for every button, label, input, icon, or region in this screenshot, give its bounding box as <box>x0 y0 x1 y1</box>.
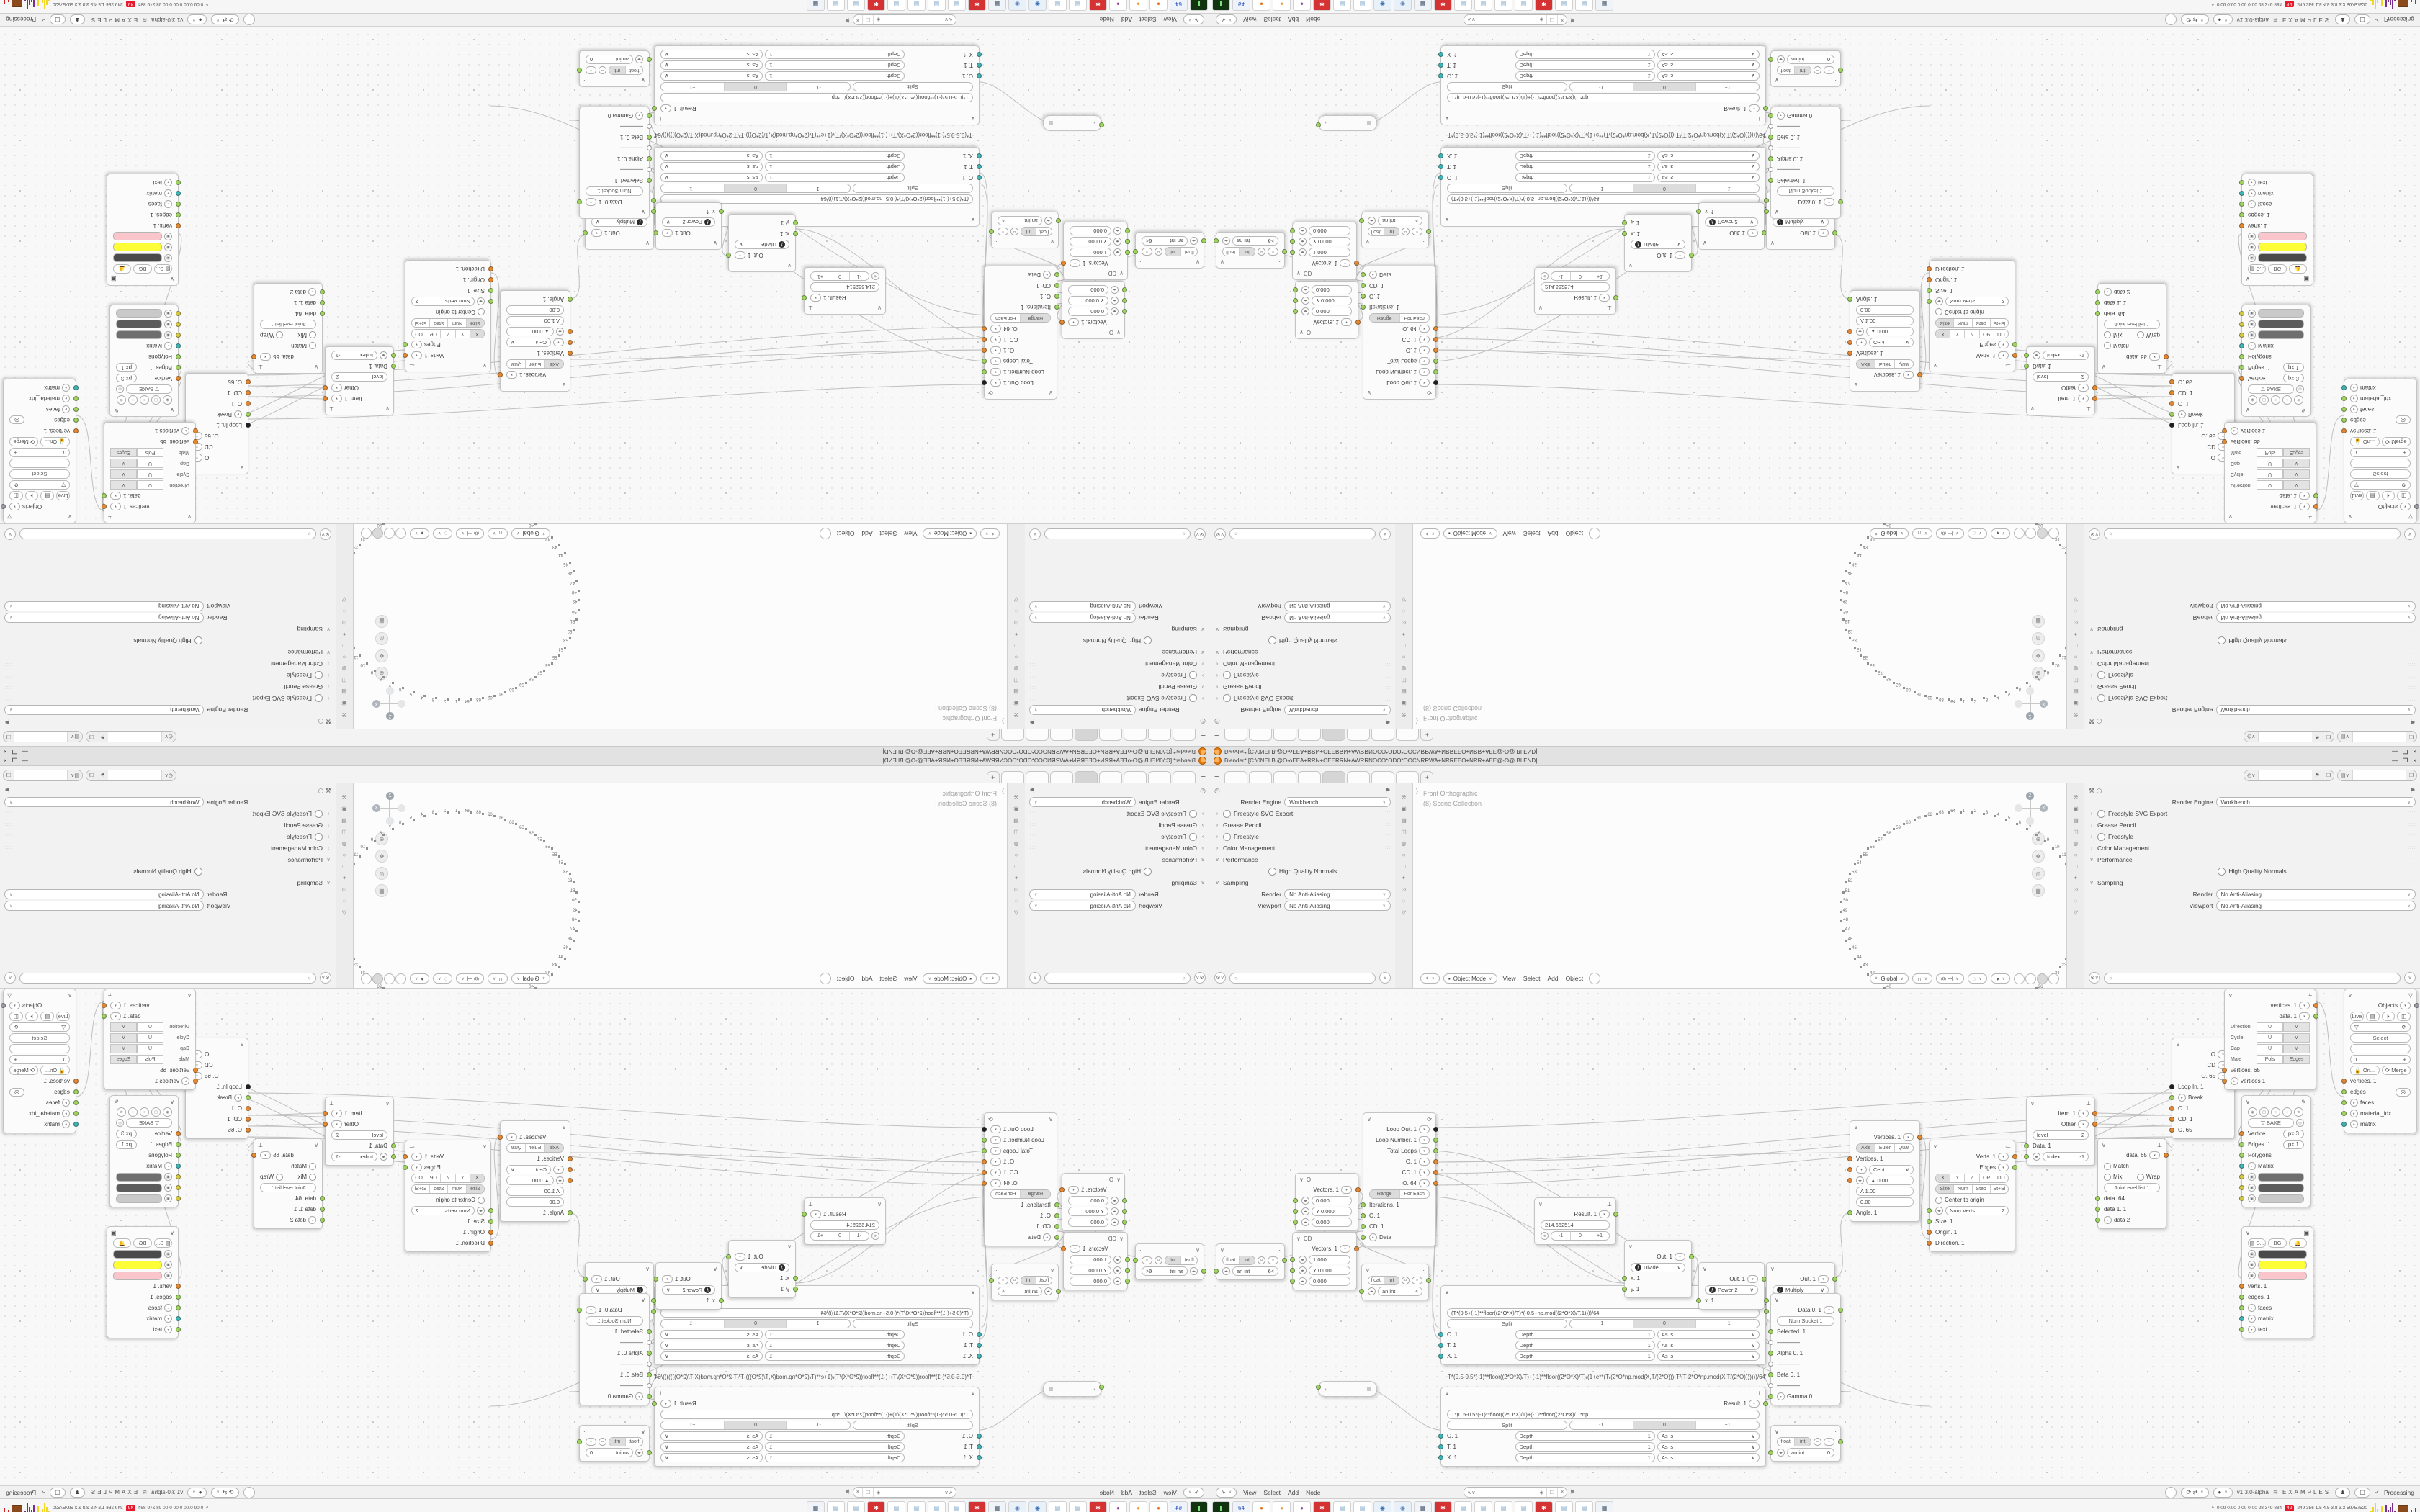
value-field[interactable]: Y 0.000 <box>1068 296 1108 305</box>
socket-in-green[interactable] <box>2095 1207 2100 1212</box>
node-loop-in[interactable]: ∨⟳Loop Out. 1▾Loop Number. 1▾Total Loops… <box>984 266 1057 400</box>
physics-icon[interactable]: ⊙ <box>1014 887 1019 893</box>
socket-in-orange[interactable] <box>246 1128 251 1133</box>
toggle-icon[interactable]: ⟲ <box>2294 395 2303 405</box>
floppy64-icon[interactable]: 64 <box>1232 0 1250 12</box>
tab-Axis[interactable]: Axis <box>544 1144 563 1152</box>
tab-Quat[interactable]: Quat <box>507 360 525 368</box>
physics-icon[interactable]: ⊙ <box>1402 619 1407 625</box>
socket-menu[interactable]: ▾ <box>1419 1179 1430 1187</box>
copy-icon[interactable]: ❐ <box>86 770 97 780</box>
socket-in-green[interactable] <box>1293 1198 1298 1203</box>
socket-in-yellow[interactable] <box>2239 1196 2244 1201</box>
socket-out-orange[interactable] <box>1433 1170 1438 1175</box>
socket-out-green[interactable] <box>989 1278 994 1283</box>
socket-menu[interactable]: ▾ <box>1998 1153 2009 1161</box>
node-button[interactable]: Num Socket 1 <box>1777 1316 1834 1326</box>
socket-in-green[interactable] <box>1622 232 1627 237</box>
tab-OP[interactable]: OP <box>426 330 440 338</box>
socket-in-green[interactable] <box>1290 1268 1295 1273</box>
value-field[interactable]: A 1.00 <box>1856 316 1914 325</box>
shield-icon[interactable]: ◈ <box>1536 15 1546 24</box>
node-menu-add[interactable]: Add <box>1286 1489 1301 1496</box>
pin-icon[interactable]: ⚑ <box>845 1488 851 1496</box>
editor-type-button[interactable]: ∿∨ <box>1183 1488 1204 1498</box>
value-field[interactable]: A 1.00 <box>506 316 564 325</box>
panel-checkbox[interactable] <box>1223 695 1231 703</box>
socket-out-orange[interactable] <box>2092 1122 2097 1127</box>
socket-menu[interactable]: ▾ <box>1998 341 2009 348</box>
object-icon[interactable]: □ <box>2074 642 2078 648</box>
modifiers-icon[interactable]: ✦ <box>1402 631 1407 636</box>
panel-checkbox[interactable] <box>2097 695 2105 703</box>
socket-in-green[interactable] <box>1125 1279 1130 1284</box>
node-viewer-index[interactable]: ∨▣▤ S...BG🔔▣▣▣verts. 1edges. 1▸faces▸mat… <box>2241 1226 2313 1338</box>
physics-icon[interactable]: ⊙ <box>342 619 347 625</box>
node-button-BG[interactable]: BG <box>133 264 151 274</box>
notepad-icon[interactable]: ▤ <box>1575 0 1593 12</box>
grid-row-Direction[interactable]: DirectionUV <box>110 481 189 490</box>
viewport-dropdown[interactable]: No Anti-Aliasing∨ <box>1029 601 1136 611</box>
socket-menu[interactable]: ▾ <box>110 1012 121 1020</box>
socket-out-green[interactable] <box>2012 1165 2017 1170</box>
value-field[interactable]: level2 <box>331 1130 387 1140</box>
panel-label[interactable]: Sampling <box>297 879 323 886</box>
node-viewer-index[interactable]: ∨▣▤ S...BG🔔▣▣▣verts. 1edges. 1▸faces▸mat… <box>107 1226 179 1338</box>
render-dropdown[interactable]: No Anti-Aliasing∨ <box>1029 613 1136 623</box>
gear-disc-icon[interactable]: ◉ <box>1008 1501 1026 1512</box>
panel-label[interactable]: Freestyle <box>1234 672 1259 679</box>
panel-label[interactable]: Performance <box>2097 856 2133 863</box>
panel-label[interactable]: Performance <box>1223 649 1258 656</box>
search-circle-button[interactable] <box>1589 528 1600 539</box>
viewport-menu-view[interactable]: View <box>1501 975 1518 982</box>
panel-label[interactable]: Color Management <box>1223 660 1275 667</box>
notepad-icon[interactable]: ▤ <box>907 0 926 12</box>
workspace-tab[interactable] <box>1273 729 1296 741</box>
node-button[interactable]: Select <box>2350 469 2411 479</box>
processing-checkbox[interactable]: ✓ <box>40 16 45 24</box>
red-gear-icon[interactable]: ✱ <box>1434 1501 1452 1512</box>
copy-icon[interactable]: ❐ <box>863 15 874 24</box>
socket-in-green[interactable] <box>2095 1196 2100 1201</box>
view-layer-icon[interactable]: ◫ <box>341 677 347 683</box>
grid-row-Cycle[interactable]: CycleUV <box>110 1034 189 1043</box>
socket-out-gray[interactable] <box>1 505 6 510</box>
node-uv-connection[interactable]: ∨⌗vertices. 1▾data. 1▾DirectionUVCycleUV… <box>2224 422 2316 523</box>
socket-in-cyan[interactable] <box>977 1343 982 1348</box>
value-field[interactable]: an int4 <box>1378 216 1422 225</box>
pin-icon[interactable]: ⚑ <box>97 732 107 742</box>
tab-Axis[interactable]: Axis <box>1857 360 1875 368</box>
node-uv-connection[interactable]: ∨⌗vertices. 1▾data. 1▾DirectionUVCycleUV… <box>104 989 196 1090</box>
new-workspace-button[interactable]: + <box>987 771 1000 783</box>
panel-label[interactable]: Performance <box>287 649 323 656</box>
node-button[interactable] <box>9 459 70 468</box>
snapping-button[interactable]: ∩∨ <box>1912 973 1932 984</box>
panel-label[interactable]: Freestyle SVG Export <box>253 810 312 817</box>
tab-Num[interactable]: Num <box>1954 319 1972 327</box>
tab-X[interactable]: X <box>1936 330 1950 338</box>
node-button-🔒 Ori...[interactable]: 🔒 Ori... <box>2350 437 2380 446</box>
node-button[interactable]: JoinLevel list 1 <box>260 320 316 329</box>
node-number-64[interactable]: ∨·floatint⚯▾◂▸an int64 <box>1135 232 1204 269</box>
socket-out-green[interactable] <box>726 253 731 258</box>
value-field[interactable]: 0.00 <box>1856 305 1914 315</box>
tool-icon[interactable]: ⚒ <box>2073 711 2078 717</box>
socket-menu[interactable]: ▾ <box>591 229 602 237</box>
scene-icon[interactable]: ◍ <box>1014 841 1019 847</box>
high-quality-normals-checkbox[interactable] <box>1144 868 1152 876</box>
socket-in-green[interactable] <box>320 1218 325 1223</box>
socket-in-green[interactable] <box>2024 1143 2029 1148</box>
x-icon[interactable]: × <box>853 15 863 24</box>
socket-in-green[interactable] <box>176 1153 181 1158</box>
tab-Step[interactable]: Step <box>1973 319 1991 327</box>
workspace-tab[interactable] <box>1322 771 1345 783</box>
socket-in-green[interactable] <box>1927 300 1932 305</box>
minimize-button[interactable]: — <box>2392 748 2398 755</box>
node-number-4[interactable]: ∨·floatint⚯▾◂▸an int4 <box>991 1264 1059 1300</box>
node-input-switch[interactable]: ∨Data 0. 1▾Num Socket 1Selected. 1————Al… <box>1770 1293 1841 1405</box>
window-button[interactable]: ▢ <box>2354 1488 2370 1498</box>
socket-menu[interactable]: ▾ <box>506 371 517 379</box>
node-menu-node[interactable]: Node <box>1304 17 1322 24</box>
socket-in-cyan[interactable] <box>2239 192 2244 197</box>
node-menu-node[interactable]: Node <box>1098 1489 1116 1496</box>
socket-out-orange[interactable] <box>323 397 328 402</box>
overlays-button[interactable]: ◌∨ <box>433 973 452 984</box>
search-input[interactable]: ○ <box>1229 529 1376 540</box>
tool-icon[interactable]: ⚒ <box>1401 795 1406 801</box>
panel-label[interactable]: Performance <box>287 856 323 863</box>
red-gear-icon[interactable]: ✱ <box>1089 0 1107 12</box>
socket-menu[interactable]: ▾ <box>810 1210 821 1218</box>
calculator-icon[interactable]: ▦ <box>988 0 1006 12</box>
socket-in-cyan[interactable] <box>1438 1332 1443 1337</box>
socket-menu[interactable]: ▾ <box>2400 503 2411 510</box>
socket-in-green[interactable] <box>1293 310 1298 315</box>
node-loop-in[interactable]: ∨⟳Loop Out. 1▾Loop Number. 1▾Total Loops… <box>984 1112 1057 1246</box>
new-workspace-button[interactable]: + <box>987 729 1000 741</box>
operation-dropdown[interactable]: ƒDivide∨ <box>1631 1263 1685 1272</box>
notepad-icon[interactable]: ▤ <box>1069 1501 1087 1512</box>
copy-icon[interactable]: ❐ <box>1546 1488 1557 1497</box>
shading-mode-buttons[interactable] <box>2014 973 2059 984</box>
node-button[interactable]: Select <box>2350 1033 2411 1043</box>
app-purple-icon[interactable]: ● <box>1109 1501 1127 1512</box>
red-gear-icon[interactable]: ✱ <box>1089 1501 1107 1512</box>
socket-menu[interactable]: ▾ <box>1818 1275 1829 1283</box>
color-swatch[interactable] <box>2258 1250 2307 1259</box>
shading-mode-buttons[interactable] <box>361 528 406 539</box>
socket-in-green[interactable] <box>1290 240 1295 245</box>
grid-row-Cap[interactable]: CapUV <box>2231 459 2310 468</box>
render-icon[interactable]: ▣ <box>2073 700 2079 706</box>
overlays-button[interactable]: ◌∨ <box>1968 528 1987 539</box>
socket-in-green[interactable] <box>1696 1298 1701 1303</box>
node-vector-in-o[interactable]: ∨OVectors. 1▾◂▸0.000◂▸Y 0.000◂▸0.000 <box>1295 1173 1358 1231</box>
socket-menu[interactable]: ▾ <box>331 1120 342 1128</box>
node-formula-result[interactable]: ∨⊥Result. 1▾214.662514⟲-10+1 <box>1534 1197 1616 1245</box>
node-button[interactable] <box>2350 459 2411 468</box>
operation-dropdown[interactable]: ƒDivide∨ <box>735 1263 789 1272</box>
color-swatch[interactable] <box>116 331 162 340</box>
tab-int[interactable]: int <box>609 1438 626 1446</box>
socket-in-green[interactable] <box>488 1219 493 1224</box>
app-purple-icon[interactable]: ● <box>1293 0 1311 12</box>
node-button-⟳ Merge[interactable]: ⟳ Merge <box>9 437 39 446</box>
value-field[interactable]: 0.000 <box>1312 1218 1352 1227</box>
socket-menu[interactable]: ▾ <box>110 503 121 510</box>
tab-For Each[interactable]: For Each <box>1400 314 1430 322</box>
socket-in-orange[interactable] <box>2341 1079 2347 1084</box>
socket-in-orange[interactable] <box>1847 1156 1852 1161</box>
tab-int[interactable]: int <box>1165 248 1181 256</box>
notepad-icon[interactable]: ▤ <box>827 0 845 12</box>
viewport-menu-view[interactable]: View <box>902 530 919 537</box>
node-loop-in[interactable]: ∨⟳Loop Out. 1▾Loop Number. 1▾Total Loops… <box>1363 1112 1436 1246</box>
socket-in-orange[interactable] <box>1847 351 1852 356</box>
node-editor[interactable]: ∨OVectors. 1▾◂▸0.000◂▸Y 0.000◂▸0.000∨⟳Lo… <box>0 989 1210 1485</box>
notepad-icon[interactable]: ▤ <box>948 1501 966 1512</box>
proportional-edit-button[interactable]: ◎ ⊣∨ <box>1936 528 1964 539</box>
socket-menu[interactable]: ▾ <box>1419 1125 1430 1133</box>
value-field[interactable]: T*(0.5-0.5*(-1)**floor((2*O*X)/T)+(-1)**… <box>1447 93 1760 102</box>
socket-in-cyan[interactable] <box>1438 53 1443 58</box>
proportional-edit-button[interactable]: ◎ ⊣∨ <box>456 528 484 539</box>
node-button-BG[interactable]: BG <box>133 1238 151 1248</box>
notepad-icon[interactable]: ▤ <box>1474 1501 1492 1512</box>
socket-out-green[interactable] <box>653 1277 658 1282</box>
node-line[interactable]: ∨≔Verts. 1▾Edges▾XYZOPODSizeNumStepSt+Si… <box>405 1140 491 1252</box>
panel-checkbox[interactable] <box>1189 810 1197 818</box>
socket-in-green[interactable] <box>1764 199 1769 204</box>
socket-in-green[interactable] <box>1316 1385 1321 1390</box>
render-icon[interactable]: ▣ <box>341 806 347 812</box>
socket-in-green[interactable] <box>1054 1202 1059 1207</box>
socket-in-green[interactable] <box>1768 135 1773 140</box>
panel-label[interactable]: Color Management <box>1223 845 1275 852</box>
socket-in-green[interactable] <box>176 1142 181 1147</box>
calculator-icon[interactable]: ▦ <box>807 0 825 12</box>
socket-menu[interactable]: ▾ <box>1070 1245 1080 1253</box>
tab-float[interactable]: float <box>626 66 643 74</box>
panel-label[interactable]: Freestyle <box>2108 672 2133 679</box>
socket-in-green[interactable] <box>1293 299 1298 304</box>
view-layer-icon[interactable]: ◫ <box>1013 829 1019 835</box>
toggle-icon[interactable]: ○ <box>2271 1107 2280 1117</box>
socket-in-cyan[interactable] <box>1438 74 1443 79</box>
socket-out-green[interactable] <box>982 359 987 364</box>
value-field[interactable]: 0.00 <box>506 1197 564 1207</box>
socket-out-green[interactable] <box>2313 1014 2318 1019</box>
operation-dropdown[interactable]: ƒPower 2∨ <box>662 217 715 227</box>
socket-menu[interactable]: ▾ <box>411 351 422 359</box>
physics-icon[interactable]: ⊙ <box>2074 887 2079 893</box>
user-button[interactable]: ♟ <box>2335 1488 2350 1498</box>
socket-in-orange[interactable] <box>176 1284 181 1289</box>
node-button-⟳ Merge[interactable]: ⟳ Merge <box>9 1066 39 1075</box>
copy-icon[interactable]: ❐ <box>2323 770 2334 780</box>
bake-button[interactable]: ▽ BAKE <box>2248 384 2294 394</box>
panel-label[interactable]: Color Management <box>271 660 323 667</box>
tray-chevron-icon[interactable]: ^ <box>206 1506 208 1511</box>
pin-icon[interactable]: ⚑ <box>2312 732 2323 742</box>
socket-in-green[interactable] <box>1214 239 1219 244</box>
node-number-4[interactable]: ∨·floatint⚯▾◂▸an int4 <box>991 212 1059 248</box>
panel-checkbox[interactable] <box>2097 833 2105 841</box>
node-button-⏵[interactable]: ⏵ <box>2382 491 2396 500</box>
socket-menu[interactable]: ▾ <box>110 492 121 500</box>
red-gear-icon[interactable]: ✱ <box>1313 1501 1331 1512</box>
panel-label[interactable]: Freestyle <box>1234 833 1259 840</box>
node-viewer-draw[interactable]: ∨✎◉◱○○⟲▽ BAKE◎Vertice...px 3Edges. 1px 1… <box>109 305 179 417</box>
color-swatch[interactable] <box>113 233 162 241</box>
node-menu-view[interactable]: View <box>1241 1489 1258 1496</box>
socket-out-green[interactable] <box>102 494 107 499</box>
socket-menu[interactable]: ▾ <box>1998 1164 2009 1171</box>
window-button[interactable]: ▢ <box>2354 15 2370 25</box>
socket-in-cyan[interactable] <box>2239 1316 2244 1321</box>
panel-label[interactable]: Grease Pencil <box>284 683 323 690</box>
node-search-field[interactable]: ▽⟳ <box>2350 480 2411 490</box>
socket-menu[interactable]: ▾ <box>1747 1275 1758 1283</box>
node-menu-view[interactable]: View <box>1241 17 1258 24</box>
notepad-icon[interactable]: ▤ <box>1494 0 1512 12</box>
socket-in-green[interactable] <box>2239 202 2244 207</box>
filter-button[interactable]: ⚙∨ <box>1214 972 1226 984</box>
socket-out-orange[interactable] <box>982 327 987 332</box>
notepad-icon[interactable]: ▤ <box>1555 1501 1573 1512</box>
shield-icon[interactable]: ◈ <box>1536 1488 1546 1497</box>
node-menu-add[interactable]: Add <box>1286 17 1301 24</box>
search-input[interactable]: ○ <box>2104 529 2401 540</box>
draft-button[interactable]: ●∨ <box>2213 1488 2233 1498</box>
bake-button[interactable]: ▽ BAKE <box>126 1118 172 1128</box>
socket-in-green[interactable] <box>647 1329 652 1334</box>
view-layer-icon[interactable]: ◫ <box>2073 677 2079 683</box>
tab-Quat[interactable]: Quat <box>507 1144 525 1152</box>
high-quality-normals-checkbox[interactable] <box>2218 868 2226 876</box>
scene-selector[interactable]: ◴∨ ⚑ ❐ <box>86 731 176 742</box>
tray-chevron-icon[interactable]: ^ <box>206 1 208 6</box>
socket-in-yellow[interactable] <box>176 1185 181 1190</box>
tab-Num[interactable]: Num <box>1954 1185 1972 1193</box>
restore-button[interactable]: ❐ <box>12 757 17 764</box>
scene-name-field[interactable] <box>108 770 161 780</box>
operation-dropdown[interactable]: ƒPower 2∨ <box>662 1285 715 1295</box>
socket-menu[interactable]: ▾ <box>1824 198 1834 206</box>
panel-label[interactable]: Sampling <box>297 626 323 633</box>
value-field[interactable]: 1.000 <box>1070 1255 1111 1264</box>
socket-out-green[interactable] <box>583 1277 588 1282</box>
tab-Y[interactable]: Y <box>455 1174 470 1182</box>
socket-in-orange[interactable] <box>193 1079 198 1084</box>
workspace-tab[interactable] <box>1371 729 1394 741</box>
render-dropdown[interactable]: No Anti-Aliasing∨ <box>1284 889 1391 899</box>
tab-OP[interactable]: OP <box>426 1174 440 1182</box>
socket-in-black[interactable] <box>2169 1084 2174 1089</box>
socket-out-orange[interactable] <box>1354 1246 1359 1251</box>
value-field[interactable]: Y 0.000 <box>1309 1266 1350 1275</box>
viewport-menu-view[interactable]: View <box>1501 530 1518 537</box>
socket-menu[interactable]: ▾ <box>260 353 271 361</box>
tab-Euler[interactable]: Euler <box>525 360 544 368</box>
scene-icon[interactable]: ◍ <box>342 841 347 847</box>
socket-in-yellow[interactable] <box>2239 333 2244 338</box>
hamburger-icon[interactable]: ≡ <box>1201 731 1206 739</box>
viewport-menu-object[interactable]: Object <box>1564 530 1586 537</box>
tab-X[interactable]: X <box>1936 1174 1950 1182</box>
tab-Size[interactable]: Size <box>466 1185 484 1193</box>
socket-in-green[interactable] <box>1622 221 1627 226</box>
socket-menu[interactable]: ▾ <box>2299 503 2310 510</box>
grid-row-Cap[interactable]: CapUV <box>110 1045 189 1053</box>
node-formula-2[interactable]: ∨⊥Result. 1▾T*(0.5-0.5*(-1)**floor((2*O*… <box>1440 1387 1766 1467</box>
node-button-⟳ Merge[interactable]: ⟳ Merge <box>2382 1066 2411 1075</box>
notepad-icon[interactable]: ▤ <box>1333 1501 1351 1512</box>
socket-in-green[interactable] <box>793 1287 798 1292</box>
constraints-icon[interactable]: ◌ <box>1015 608 1018 613</box>
node-button-🔔[interactable]: 🔔 <box>2289 264 2307 274</box>
node-line[interactable]: ∨≔Verts. 1▾Edges▾XYZOPODSizeNumStepSt+Si… <box>1929 1140 2015 1252</box>
node-button-◫[interactable]: ◫ <box>2397 1012 2411 1021</box>
render-icon[interactable]: ▣ <box>2073 806 2079 812</box>
orientation-dropdown[interactable]: ⌖ Global∨ <box>511 973 550 984</box>
render-dropdown[interactable]: No Anti-Aliasing∨ <box>2216 889 2416 899</box>
socket-in-green[interactable] <box>2341 1089 2347 1094</box>
close-button[interactable]: × <box>2413 748 2416 755</box>
socket-out-orange[interactable] <box>403 1154 408 1159</box>
socket-in-white[interactable] <box>1768 1362 1773 1367</box>
orientation-dropdown[interactable]: ⌖ Global∨ <box>1870 973 1909 984</box>
user-button[interactable]: ♟ <box>70 1488 85 1498</box>
node-button[interactable]: Num Socket 1 <box>586 1316 643 1326</box>
socket-in-cyan[interactable] <box>977 1455 982 1460</box>
socket-menu[interactable]: ▾ <box>990 1125 1001 1133</box>
output-icon[interactable]: ▤ <box>1401 688 1407 694</box>
socket-out-orange[interactable] <box>982 1181 987 1186</box>
notepad-icon[interactable]: ▤ <box>1515 0 1533 12</box>
node-menu-view[interactable]: View <box>1162 17 1179 24</box>
node-menu-add[interactable]: Add <box>1119 1489 1134 1496</box>
value-field[interactable]: 1.000 <box>1309 1255 1350 1264</box>
tab-Range[interactable]: Range <box>1021 314 1051 322</box>
value-field[interactable]: 0.000 <box>1068 307 1108 316</box>
node-rotate[interactable]: ∨Vertices. 1▾AxisEulerQuatVertices. 1▾Ce… <box>1850 1120 1920 1222</box>
socket-in-green[interactable] <box>1293 288 1298 293</box>
reroute-node[interactable]: › <box>1318 115 1377 131</box>
socket-menu[interactable]: ▾ <box>2078 384 2089 392</box>
toggle-icon[interactable]: ○ <box>2271 395 2280 405</box>
socket-out-gray[interactable] <box>1 1003 6 1008</box>
panel-checkbox[interactable] <box>1189 695 1197 703</box>
filter-button[interactable]: ⚙∨ <box>2089 972 2100 984</box>
node-vector-in-cd[interactable]: ∨CDVectors. 1▾◂▸1.000◂▸Y 0.000◂▸0.000 <box>1292 222 1357 280</box>
update-button[interactable]: ⟳ ⇄∨ <box>211 1488 238 1498</box>
node-number-0[interactable]: ∨·floatint⚯▾◂▸an int0 <box>579 1425 650 1462</box>
socket-in-orange[interactable] <box>246 1117 251 1122</box>
socket-in-green[interactable] <box>176 1327 181 1332</box>
node-power-2[interactable]: ∨Out. 1▾ƒPower 2∨x. 1 <box>1698 202 1765 250</box>
notepad-icon[interactable]: ▤ <box>948 0 966 12</box>
tab-St+Si[interactable]: St+Si <box>1991 1185 2008 1193</box>
node-rotate[interactable]: ∨Vertices. 1▾AxisEulerQuatVertices. 1▾Ce… <box>500 290 570 392</box>
new-workspace-button[interactable]: + <box>1420 729 1433 741</box>
value-field[interactable]: an int64 <box>1142 236 1188 246</box>
panel-checkbox[interactable] <box>1189 672 1197 680</box>
